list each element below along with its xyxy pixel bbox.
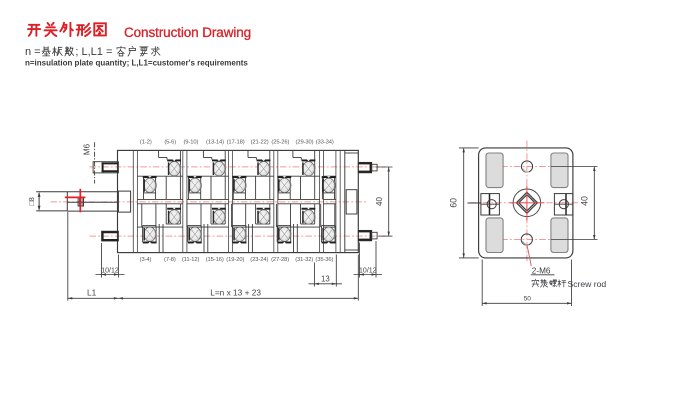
svg-text:13: 13 [321, 275, 330, 284]
svg-text:M6: M6 [83, 143, 92, 155]
svg-text:40: 40 [375, 197, 384, 206]
svg-text:(21-22): (21-22) [251, 140, 269, 146]
svg-text:Construction Drawing: Construction Drawing [124, 25, 251, 40]
svg-text:; L,L1 =: ; L,L1 = [75, 46, 112, 58]
svg-text:Screw rod: Screw rod [568, 279, 607, 289]
svg-text:(9-10): (9-10) [183, 140, 198, 146]
svg-text:n =: n = [25, 46, 41, 58]
svg-text:L=n x 13 + 23: L=n x 13 + 23 [210, 287, 261, 297]
svg-text:(1-2): (1-2) [140, 140, 152, 146]
svg-text:10/12: 10/12 [101, 268, 119, 275]
svg-text:□8: □8 [27, 197, 36, 206]
svg-text:(33-34): (33-34) [316, 140, 334, 146]
svg-text:(3-4): (3-4) [140, 257, 152, 263]
svg-text:(19-20): (19-20) [226, 257, 244, 263]
svg-text:(23-24): (23-24) [250, 257, 268, 263]
svg-text:(13-14): (13-14) [206, 140, 224, 146]
svg-text:L1: L1 [87, 287, 97, 297]
svg-text:n=insulation plate quantity; L: n=insulation plate quantity; L,L1=custom… [25, 59, 248, 68]
svg-text:(7-8): (7-8) [164, 257, 176, 263]
svg-text:(11-12): (11-12) [182, 257, 200, 263]
svg-text:(25-26): (25-26) [271, 140, 289, 146]
svg-text:2-M6: 2-M6 [532, 266, 551, 275]
svg-text:60: 60 [448, 198, 458, 208]
svg-text:(15-16): (15-16) [206, 257, 224, 263]
svg-text:(31-32): (31-32) [295, 257, 313, 263]
svg-text:(5-6): (5-6) [164, 140, 176, 146]
svg-text:10/12: 10/12 [359, 268, 377, 275]
svg-text:(29-30): (29-30) [296, 140, 314, 146]
svg-text:50: 50 [524, 295, 532, 302]
svg-text:(27-28): (27-28) [271, 257, 289, 263]
svg-text:40: 40 [580, 196, 590, 206]
svg-text:(35-36): (35-36) [315, 257, 333, 263]
svg-text:(17-18): (17-18) [227, 140, 245, 146]
